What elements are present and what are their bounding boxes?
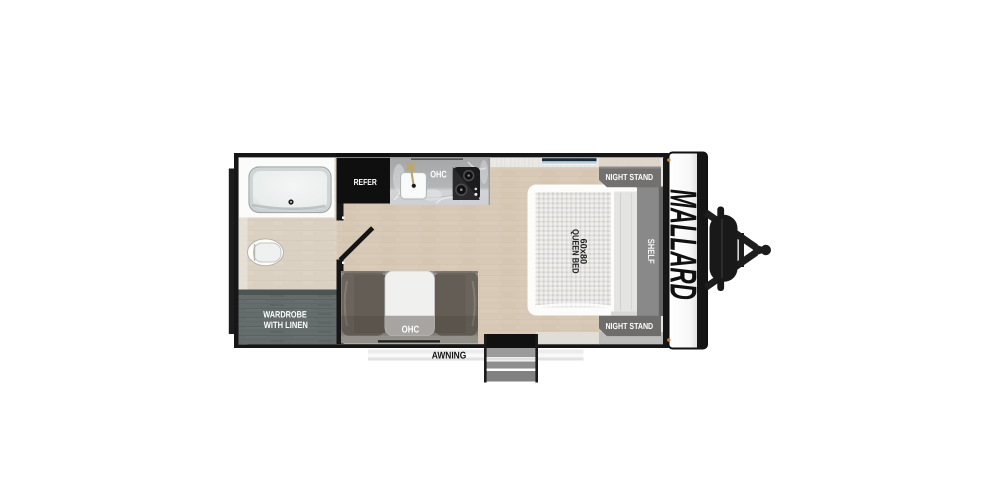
svg-text:OHC: OHC <box>430 170 447 181</box>
svg-text:SHELF: SHELF <box>646 239 656 264</box>
svg-text:WITH LINEN: WITH LINEN <box>264 320 308 330</box>
svg-text:MALLARD: MALLARD <box>662 189 704 300</box>
svg-text:OHC: OHC <box>402 325 419 336</box>
svg-text:NIGHT STAND: NIGHT STAND <box>605 172 653 182</box>
svg-text:AWNING: AWNING <box>432 351 467 362</box>
svg-text:WARDROBE: WARDROBE <box>263 309 306 319</box>
svg-text:REFER: REFER <box>354 177 378 187</box>
svg-text:QUEEN BED: QUEEN BED <box>571 229 581 274</box>
svg-text:NIGHT STAND: NIGHT STAND <box>605 321 653 331</box>
